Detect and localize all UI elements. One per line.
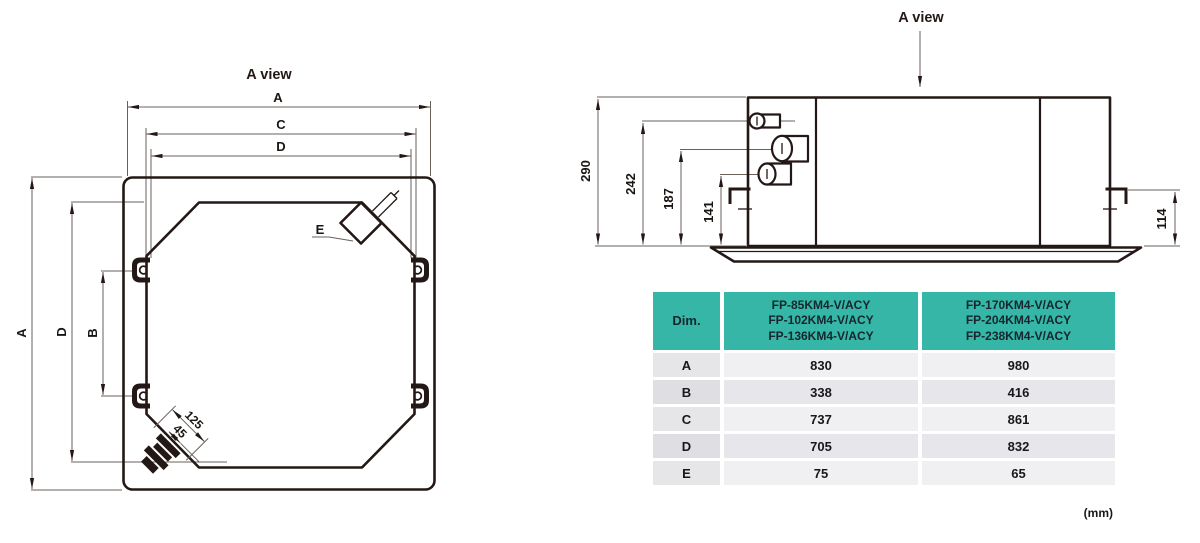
dim-187-label: 187	[661, 188, 676, 210]
unit-body-side	[748, 98, 1110, 247]
row-B-dim: B	[653, 380, 720, 404]
model-name: FP-204KM4-V/ACY	[966, 313, 1071, 329]
dimension-table: Dim. FP-85KM4-V/ACY FP-102KM4-V/ACY FP-1…	[653, 292, 1115, 485]
dim-A-horizontal: A	[128, 90, 431, 176]
dim-A-vertical-label: A	[14, 328, 29, 338]
row-E-value-small: 75	[724, 461, 918, 485]
row-B-value-small: 338	[724, 380, 918, 404]
dim-D-vertical-label: D	[54, 327, 69, 336]
pipe-stub-medium	[759, 164, 792, 185]
row-C-value-small: 737	[724, 407, 918, 431]
dim-D-label: D	[276, 139, 285, 154]
dim-A-label: A	[273, 90, 283, 105]
model-name: FP-170KM4-V/ACY	[966, 298, 1071, 314]
row-B-value-large: 416	[922, 380, 1115, 404]
row-A-value-small: 830	[724, 353, 918, 377]
dim-E-label: E	[316, 222, 325, 237]
side-hanger-left	[730, 189, 749, 203]
dim-242: 242	[623, 123, 643, 245]
e-junction-box	[341, 191, 400, 244]
row-D-dim: D	[653, 434, 720, 458]
table-header-models-small: FP-85KM4-V/ACY FP-102KM4-V/ACY FP-136KM4…	[724, 292, 918, 350]
dim-B-vertical: B	[85, 271, 137, 396]
dim-290-label: 290	[578, 160, 593, 182]
model-name: FP-102KM4-V/ACY	[768, 313, 873, 329]
decoration-panel-side	[711, 248, 1141, 262]
dim-D-horizontal: D	[151, 139, 411, 258]
dim-290: 290	[578, 99, 598, 245]
dim-C-label: C	[276, 117, 286, 132]
top-view-title: A view	[246, 67, 292, 83]
unit-note: (mm)	[1033, 506, 1113, 520]
model-name: FP-136KM4-V/ACY	[768, 329, 873, 345]
row-E-dim: E	[653, 461, 720, 485]
dim-114-label: 114	[1154, 208, 1169, 230]
row-C-dim: C	[653, 407, 720, 431]
pipe-stub-large	[772, 136, 808, 162]
dim-114: 114	[1128, 190, 1180, 246]
dim-B-vertical-label: B	[85, 328, 100, 337]
row-A-value-large: 980	[922, 353, 1115, 377]
row-A-dim: A	[653, 353, 720, 377]
figure-canvas: A view A C D	[0, 0, 1200, 543]
side-view-title: A view	[898, 10, 944, 26]
row-D-value-large: 832	[922, 434, 1115, 458]
table-header-models-large: FP-170KM4-V/ACY FP-204KM4-V/ACY FP-238KM…	[922, 292, 1115, 350]
dim-242-label: 242	[623, 173, 638, 195]
row-C-value-large: 861	[922, 407, 1115, 431]
row-E-value-large: 65	[922, 461, 1115, 485]
dim-187: 187	[661, 151, 681, 245]
side-view: A view	[578, 10, 1180, 262]
row-D-value-small: 705	[724, 434, 918, 458]
pipe-stub-small	[750, 114, 781, 129]
dim-141: 141	[701, 176, 721, 245]
dim-141-label: 141	[701, 201, 716, 223]
table-header-dim: Dim.	[653, 292, 720, 350]
model-name: FP-238KM4-V/ACY	[966, 329, 1071, 345]
model-name: FP-85KM4-V/ACY	[772, 298, 871, 314]
top-view: A view A C D	[14, 67, 435, 491]
